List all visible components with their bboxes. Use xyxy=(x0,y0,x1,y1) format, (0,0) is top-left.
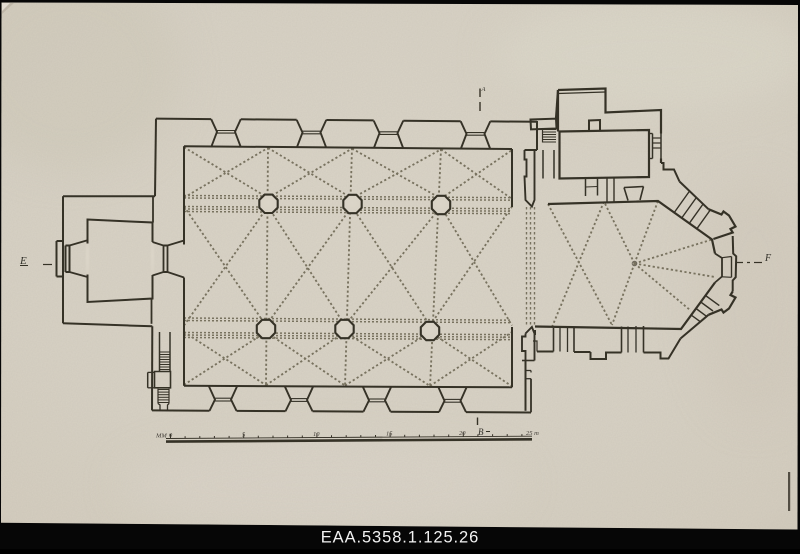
svg-text:F: F xyxy=(764,253,772,264)
svg-text:25 m: 25 m xyxy=(526,430,539,437)
svg-text:EAA.5358.1.125.26: EAA.5358.1.125.26 xyxy=(321,528,479,546)
svg-text:10: 10 xyxy=(313,431,320,438)
svg-text:20: 20 xyxy=(459,430,466,437)
svg-text:MM: MM xyxy=(155,433,167,440)
svg-text:A: A xyxy=(481,86,486,93)
svg-text:B: B xyxy=(478,427,484,437)
svg-text:15: 15 xyxy=(386,431,393,438)
